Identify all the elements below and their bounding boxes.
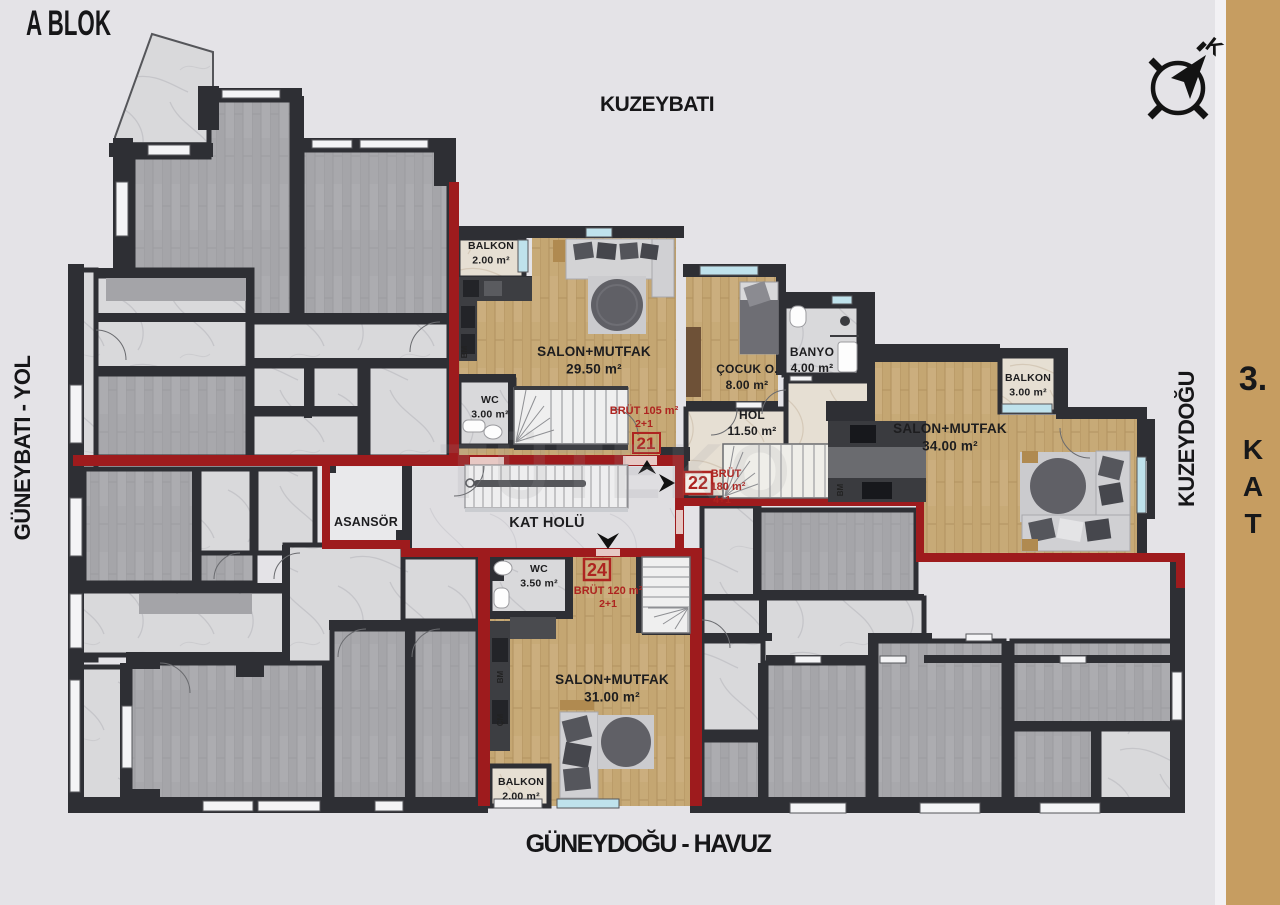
svg-text:BALKON: BALKON	[1005, 372, 1051, 384]
svg-text:HOL: HOL	[739, 408, 765, 422]
svg-text:BALKON: BALKON	[468, 240, 514, 252]
svg-text:GÜNEYBATI - YOL: GÜNEYBATI - YOL	[10, 356, 35, 541]
svg-text:2.00 m²: 2.00 m²	[472, 255, 510, 267]
svg-text:KUZEYDOĞU: KUZEYDOĞU	[1174, 371, 1199, 507]
svg-text:BRÜT 120 m²: BRÜT 120 m²	[574, 584, 643, 597]
svg-text:29.50 m²: 29.50 m²	[566, 362, 622, 377]
svg-text:BM: BM	[496, 670, 505, 683]
svg-text:A: A	[1243, 471, 1263, 502]
svg-text:SALON+MUTFAK: SALON+MUTFAK	[555, 672, 669, 687]
svg-text:BALKON: BALKON	[498, 776, 544, 788]
svg-text:31.00 m²: 31.00 m²	[584, 690, 640, 705]
svg-text:SALON+MUTFAK: SALON+MUTFAK	[893, 421, 1007, 436]
svg-text:BM: BM	[460, 345, 469, 358]
svg-text:ÇM: ÇM	[496, 713, 505, 726]
svg-text:TÜTEKO: TÜTEKO	[440, 427, 797, 515]
svg-text:KAT HOLÜ: KAT HOLÜ	[509, 514, 584, 531]
svg-text:A BLOK: A BLOK	[26, 4, 111, 43]
svg-text:ÇOCUK O.: ÇOCUK O.	[716, 362, 778, 376]
svg-text:ASANSÖR: ASANSÖR	[334, 514, 398, 529]
svg-text:WC: WC	[481, 394, 499, 406]
svg-text:3.: 3.	[1239, 360, 1267, 398]
svg-text:WC: WC	[530, 563, 548, 575]
svg-text:2.00 m²: 2.00 m²	[502, 791, 540, 803]
svg-text:34.00 m²: 34.00 m²	[922, 439, 978, 454]
svg-text:4.00 m²: 4.00 m²	[791, 361, 834, 375]
svg-text:3.00 m²: 3.00 m²	[471, 409, 509, 421]
svg-text:3.50 m²: 3.50 m²	[520, 578, 558, 590]
svg-text:GÜNEYDOĞU - HAVUZ: GÜNEYDOĞU - HAVUZ	[526, 829, 772, 858]
svg-text:BRÜT 105 m²: BRÜT 105 m²	[610, 404, 679, 417]
svg-text:BANYO: BANYO	[790, 345, 834, 359]
svg-text:3.00 m²: 3.00 m²	[1009, 387, 1047, 399]
svg-text:8.00 m²: 8.00 m²	[726, 378, 769, 392]
svg-text:K: K	[1243, 434, 1263, 465]
svg-text:24: 24	[587, 560, 607, 580]
svg-text:SALON+MUTFAK: SALON+MUTFAK	[537, 344, 651, 359]
svg-text:2+1: 2+1	[599, 598, 617, 610]
svg-text:BM: BM	[836, 483, 845, 496]
svg-text:KUZEYBATI: KUZEYBATI	[600, 93, 714, 116]
svg-text:T: T	[1244, 508, 1261, 539]
